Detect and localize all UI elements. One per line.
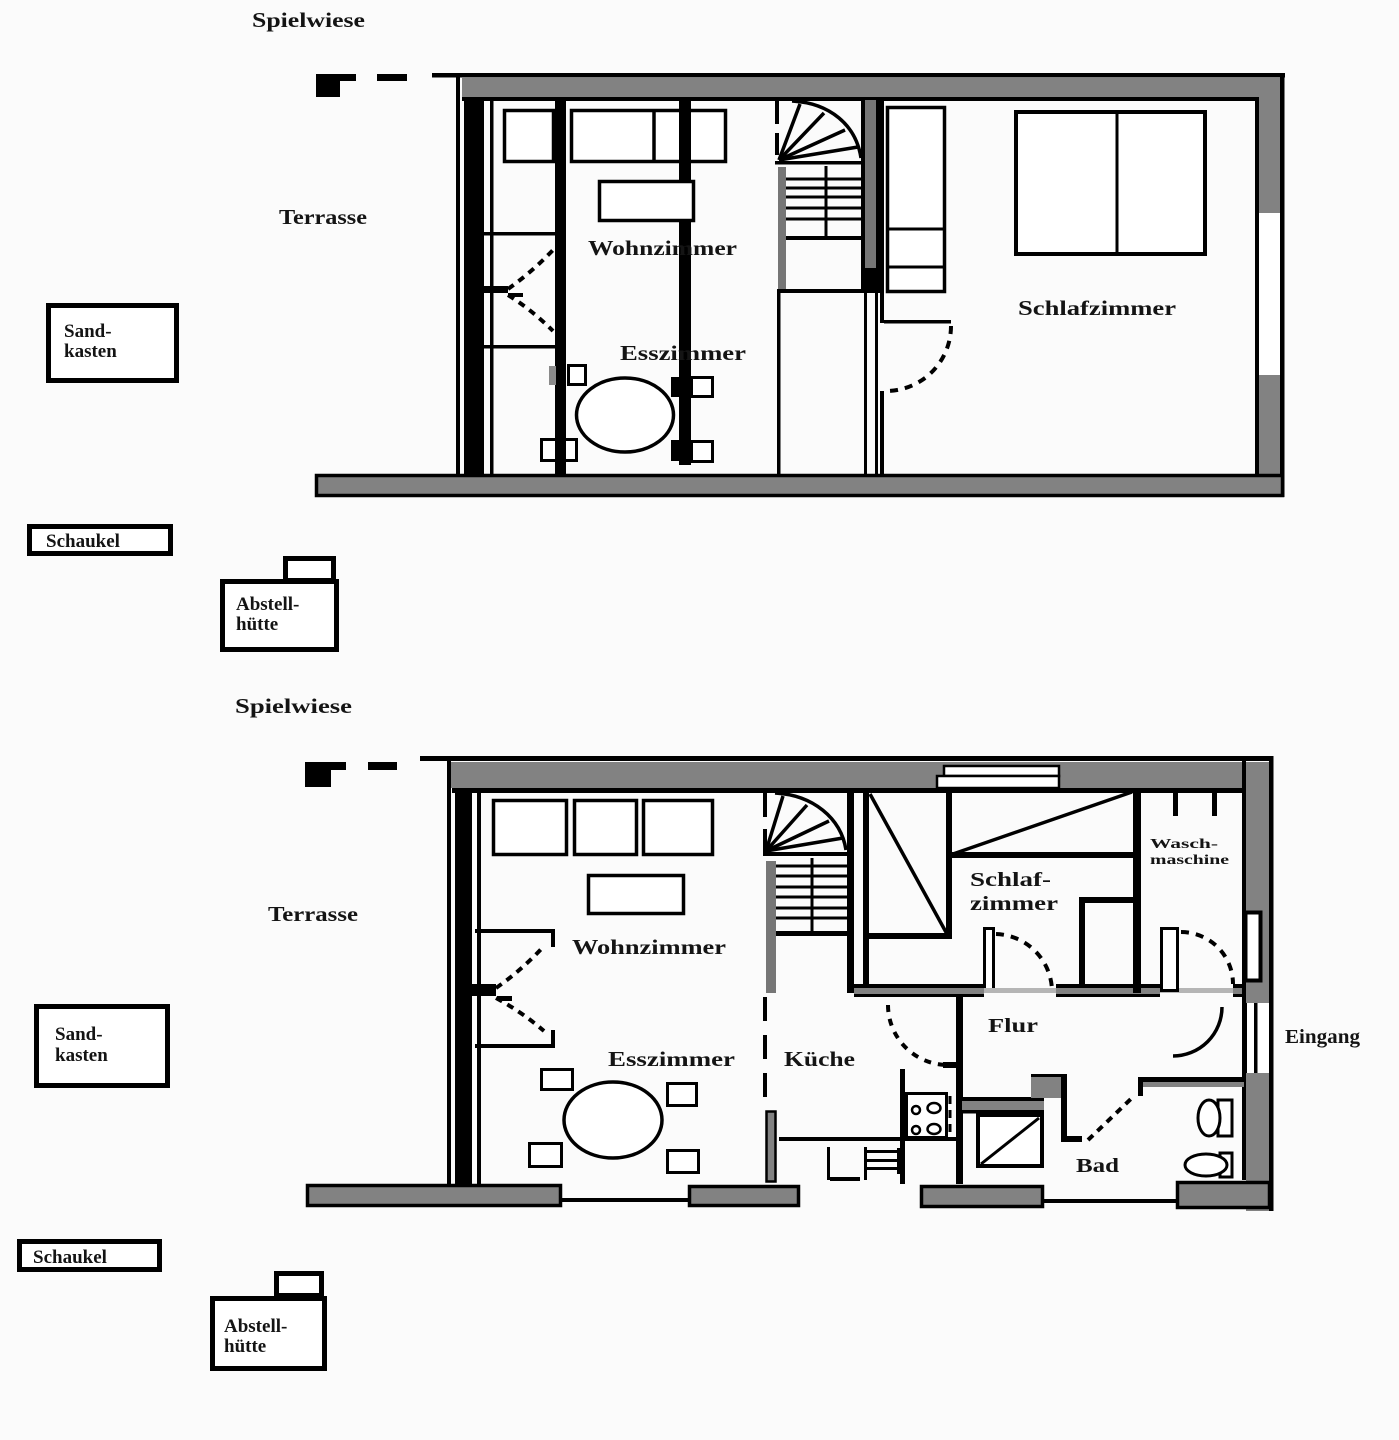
svg-text:kasten: kasten [55, 1045, 108, 1066]
svg-text:Spielwiese: Spielwiese [252, 8, 365, 32]
svg-text:Schaukel: Schaukel [46, 531, 120, 552]
svg-text:maschine: maschine [1150, 853, 1229, 868]
svg-text:Wohnzimmer: Wohnzimmer [572, 935, 726, 959]
svg-text:Terrasse: Terrasse [268, 902, 358, 926]
svg-text:Flur: Flur [988, 1015, 1038, 1037]
svg-text:Wasch-: Wasch- [1150, 837, 1219, 852]
svg-text:Schlafzimmer: Schlafzimmer [1018, 296, 1176, 320]
svg-text:Spielwiese: Spielwiese [235, 694, 352, 718]
svg-text:Küche: Küche [784, 1047, 855, 1071]
svg-text:hütte: hütte [236, 614, 278, 635]
svg-text:kasten: kasten [64, 341, 117, 362]
svg-text:Wohnzimmer: Wohnzimmer [588, 236, 737, 260]
svg-text:Sand-: Sand- [55, 1024, 103, 1045]
svg-text:Terrasse: Terrasse [279, 205, 367, 229]
svg-text:Sand-: Sand- [64, 321, 112, 342]
svg-text:Schlaf-: Schlaf- [970, 869, 1051, 891]
svg-text:zimmer: zimmer [970, 893, 1058, 915]
svg-text:Esszimmer: Esszimmer [608, 1047, 735, 1071]
svg-text:Bad: Bad [1076, 1155, 1119, 1177]
svg-text:Abstell-: Abstell- [236, 594, 299, 615]
svg-text:hütte: hütte [224, 1336, 266, 1357]
svg-text:Abstell-: Abstell- [224, 1316, 287, 1337]
svg-text:Schaukel: Schaukel [33, 1247, 107, 1268]
svg-text:Eingang: Eingang [1285, 1026, 1360, 1048]
svg-text:Esszimmer: Esszimmer [620, 341, 746, 365]
